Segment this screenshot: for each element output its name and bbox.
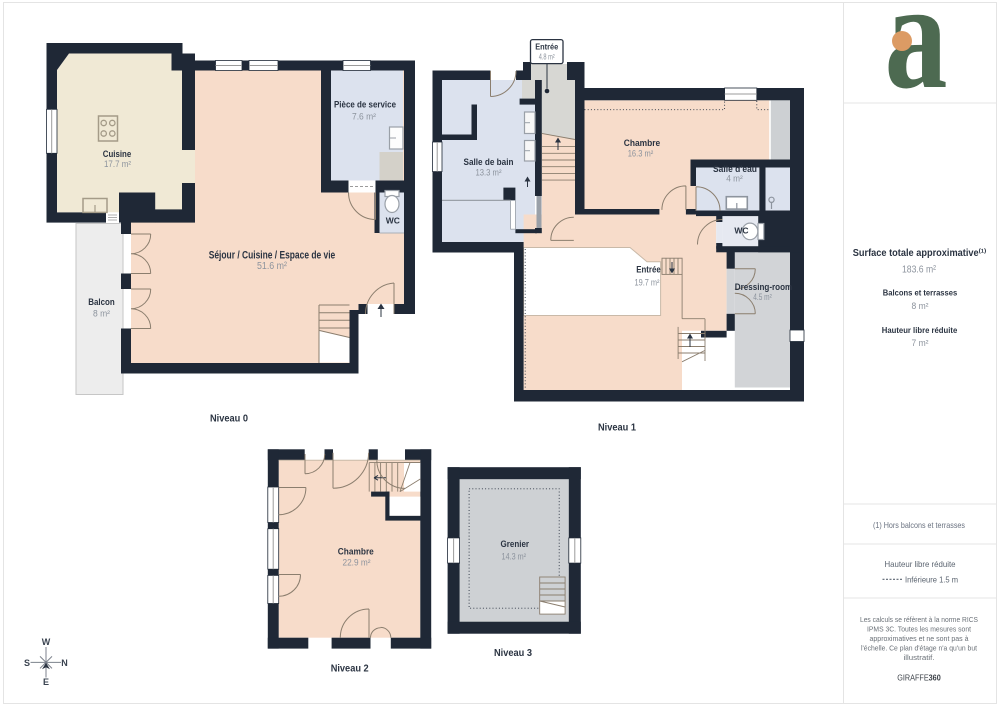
svg-text:W: W (42, 637, 51, 647)
svg-text:51.6 m²: 51.6 m² (257, 261, 288, 272)
svg-text:illustratif.: illustratif. (904, 653, 935, 662)
svg-text:Niveau 0: Niveau 0 (210, 414, 248, 425)
svg-text:Entrée: Entrée (535, 42, 558, 52)
svg-text:Balcon: Balcon (88, 297, 115, 308)
svg-text:(1) Hors balcons et terrasses: (1) Hors balcons et terrasses (873, 520, 965, 530)
svg-text:GIRAFFE360: GIRAFFE360 (897, 673, 941, 683)
svg-text:4 m²: 4 m² (726, 174, 743, 184)
svg-text:Grenier: Grenier (501, 539, 530, 550)
svg-text:14.3 m²: 14.3 m² (502, 552, 527, 562)
svg-text:WC: WC (386, 216, 400, 226)
svg-text:Les calculs se réfèrent à la n: Les calculs se réfèrent à la norme RICS (860, 615, 978, 624)
svg-text:19.7 m²: 19.7 m² (635, 278, 660, 288)
svg-text:22.9 m²: 22.9 m² (343, 558, 371, 568)
svg-text:8 m²: 8 m² (912, 301, 929, 311)
svg-text:Chambre: Chambre (338, 547, 374, 558)
svg-text:a: a (885, 0, 948, 121)
svg-text:Hauteur libre réduite: Hauteur libre réduite (885, 559, 956, 569)
svg-text:7 m²: 7 m² (912, 338, 929, 348)
svg-text:Niveau 1: Niveau 1 (598, 423, 636, 434)
svg-text:l'échelle. Ce plan d'étage n'a: l'échelle. Ce plan d'étage n'a qu'un but (861, 644, 978, 653)
svg-text:16.3 m²: 16.3 m² (628, 149, 654, 159)
svg-text:Entrée: Entrée (636, 265, 661, 276)
svg-text:approximatives et ne sont pas: approximatives et ne sont pas à (870, 634, 970, 643)
svg-text:7.6 m²: 7.6 m² (352, 112, 376, 122)
svg-text:Niveau 2: Niveau 2 (331, 664, 369, 675)
svg-text:N: N (61, 658, 68, 668)
svg-text:13.3 m²: 13.3 m² (476, 168, 502, 178)
svg-text:WC: WC (734, 226, 748, 236)
svg-text:4.8 m²: 4.8 m² (539, 53, 555, 62)
svg-text:Niveau 3: Niveau 3 (494, 648, 532, 659)
svg-text:Chambre: Chambre (624, 138, 661, 149)
svg-text:Hauteur libre réduite: Hauteur libre réduite (882, 325, 958, 335)
svg-text:Balcons et terrasses: Balcons et terrasses (883, 288, 958, 298)
svg-text:IPMS 3C. Toutes les mesures so: IPMS 3C. Toutes les mesures sont (867, 625, 972, 634)
svg-text:Salle de bain: Salle de bain (464, 157, 514, 168)
svg-text:183.6 m²: 183.6 m² (902, 265, 937, 276)
svg-text:4.5 m²: 4.5 m² (753, 292, 772, 302)
svg-text:Pièce de service: Pièce de service (334, 100, 396, 111)
svg-text:8 m²: 8 m² (93, 309, 110, 319)
svg-text:Séjour / Cuisine / Espace de v: Séjour / Cuisine / Espace de vie (209, 250, 336, 262)
svg-text:Inférieure 1.5 m: Inférieure 1.5 m (905, 575, 958, 585)
svg-text:Surface totale approximative⁽¹: Surface totale approximative⁽¹⁾ (853, 248, 987, 259)
svg-text:E: E (43, 677, 49, 687)
svg-text:S: S (24, 658, 30, 668)
svg-text:17.7 m²: 17.7 m² (104, 159, 131, 169)
